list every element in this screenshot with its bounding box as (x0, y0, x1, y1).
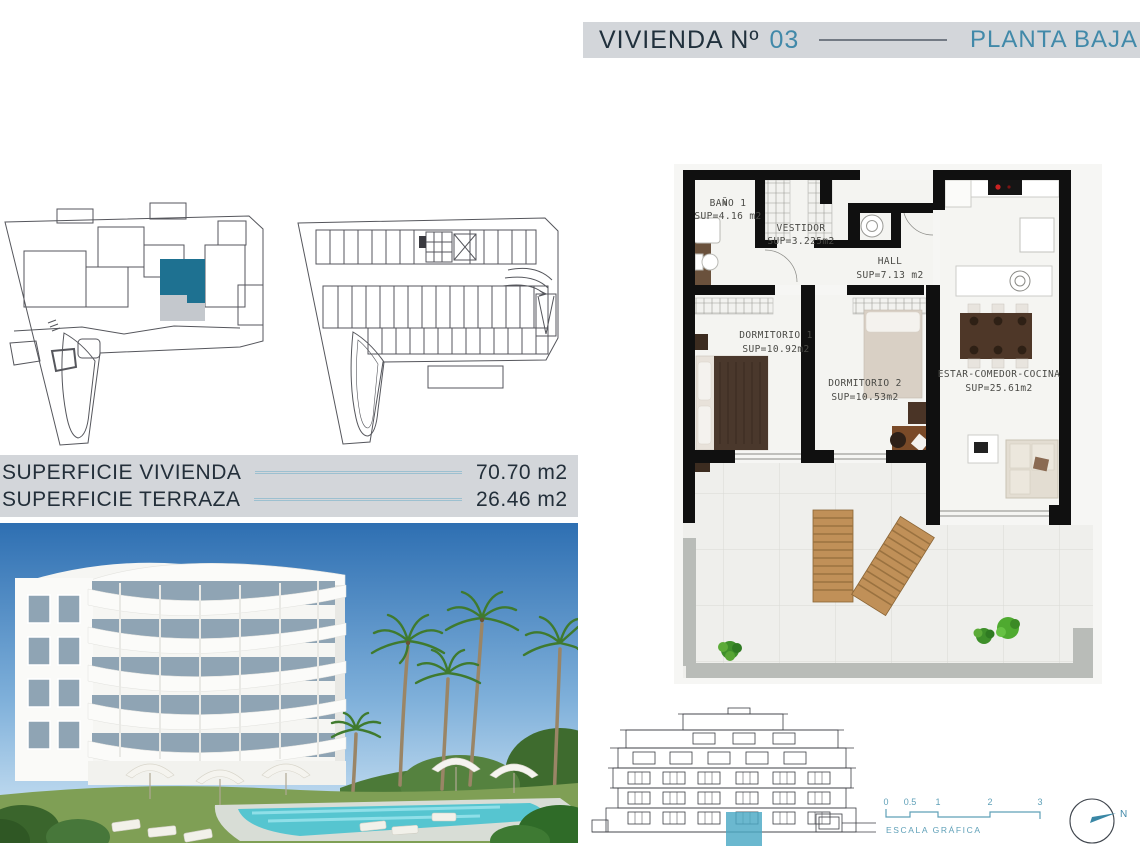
scale-tick-05: 0.5 (904, 797, 917, 807)
surface-row-vivienda: SUPERFICIE VIVIENDA 70.70 m2 (2, 459, 568, 486)
room-label-vestidor: VESTIDOR (777, 223, 826, 234)
header-divider-line (819, 39, 947, 41)
floor-label: PLANTA BAJA (970, 26, 1138, 54)
elevation-unit-highlight (726, 812, 762, 846)
surface-row-terraza: SUPERFICIE TERRAZA 26.46 m2 (2, 486, 568, 513)
surface-terraza-value: 26.46 m2 (476, 488, 568, 512)
scale-bar: 0 0.5 1 2 3 ESCALA GRÁFICA (878, 795, 1063, 840)
building-render-photo (0, 523, 578, 843)
scale-tick-0: 0 (883, 797, 888, 807)
north-arrow-icon (1090, 813, 1116, 823)
header-band: VIVIENDA Nº 03 PLANTA BAJA (583, 22, 1140, 58)
apartment-building (15, 563, 346, 785)
leader-line (254, 498, 462, 501)
room-label-bano: BAÑO 1 (710, 198, 747, 209)
room-label-dorm1: DORMITORIO 1 (739, 330, 812, 341)
building-elevation (588, 700, 878, 860)
scale-tick-2: 2 (987, 797, 992, 807)
page-title: VIVIENDA Nº (599, 26, 759, 55)
surface-vivienda-label: SUPERFICIE VIVIENDA (2, 461, 241, 485)
room-area-dorm1: SUP=10.92m2 (742, 344, 809, 355)
surface-vivienda-value: 70.70 m2 (476, 461, 568, 485)
surface-table: SUPERFICIE VIVIENDA 70.70 m2 SUPERFICIE … (0, 455, 578, 517)
room-area-hall: SUP=7.13 m2 (856, 270, 923, 281)
scale-tick-3: 3 (1037, 797, 1042, 807)
site-plan-locator (2, 193, 284, 451)
room-area-dorm2: SUP=10.53m2 (831, 392, 898, 403)
room-label-estar: ESTAR-COMEDOR-COCINA (938, 369, 1060, 380)
room-area-estar: SUP=25.61m2 (965, 383, 1032, 394)
leader-line (255, 471, 462, 474)
unit-number: 03 (769, 26, 799, 55)
north-label: N (1120, 809, 1127, 820)
dining-set (960, 304, 1032, 368)
room-label-dorm2: DORMITORIO 2 (828, 378, 901, 389)
highlighted-unit (160, 259, 205, 321)
surface-terraza-label: SUPERFICIE TERRAZA (2, 488, 240, 512)
compass: N (1060, 788, 1140, 853)
site-plan-parking (288, 190, 580, 452)
room-area-bano: SUP=4.16 m2 (694, 211, 761, 222)
scale-tick-1: 1 (935, 797, 940, 807)
scale-bar-caption: ESCALA GRÁFICA (886, 825, 982, 835)
floor-plan: BAÑO 1 SUP=4.16 m2 VESTIDOR SUP=3.225m2 … (668, 158, 1132, 690)
brochure-page: VIVIENDA Nº 03 PLANTA BAJA (0, 0, 1140, 860)
room-area-vestidor: SUP=3.225m2 (767, 236, 834, 247)
room-label-hall: HALL (878, 256, 902, 267)
